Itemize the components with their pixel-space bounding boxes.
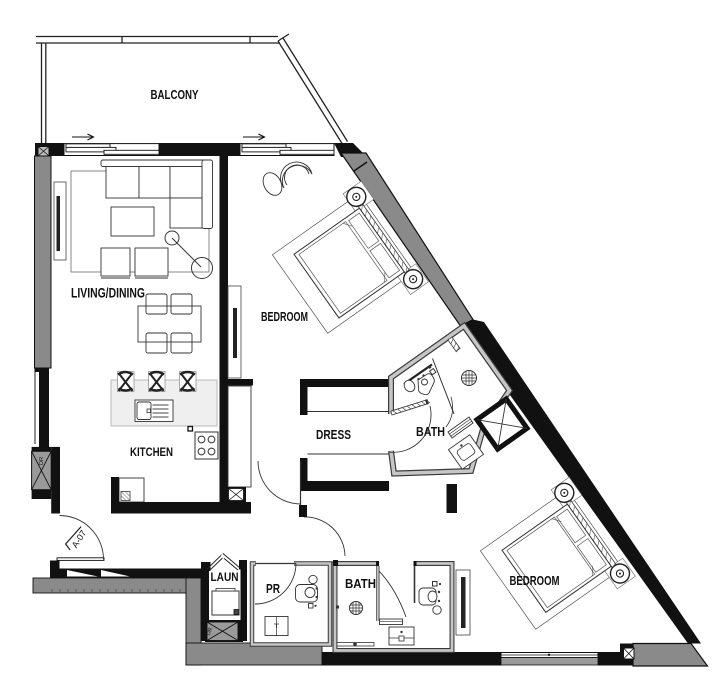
svg-text:DRESS: DRESS bbox=[316, 427, 351, 442]
svg-text:BATH: BATH bbox=[345, 577, 376, 591]
svg-text:KITCHEN: KITCHEN bbox=[130, 445, 173, 459]
svg-text:LIVING/DINING: LIVING/DINING bbox=[71, 285, 145, 301]
svg-text:PR: PR bbox=[266, 581, 280, 596]
svg-text:BEDROOM: BEDROOM bbox=[510, 574, 560, 588]
svg-text:BEDROOM: BEDROOM bbox=[261, 310, 308, 324]
svg-text:BATH: BATH bbox=[416, 424, 445, 439]
svg-text:LAUN: LAUN bbox=[211, 570, 239, 584]
svg-text:BALCONY: BALCONY bbox=[151, 87, 199, 102]
svg-text:DR: DR bbox=[39, 457, 45, 465]
